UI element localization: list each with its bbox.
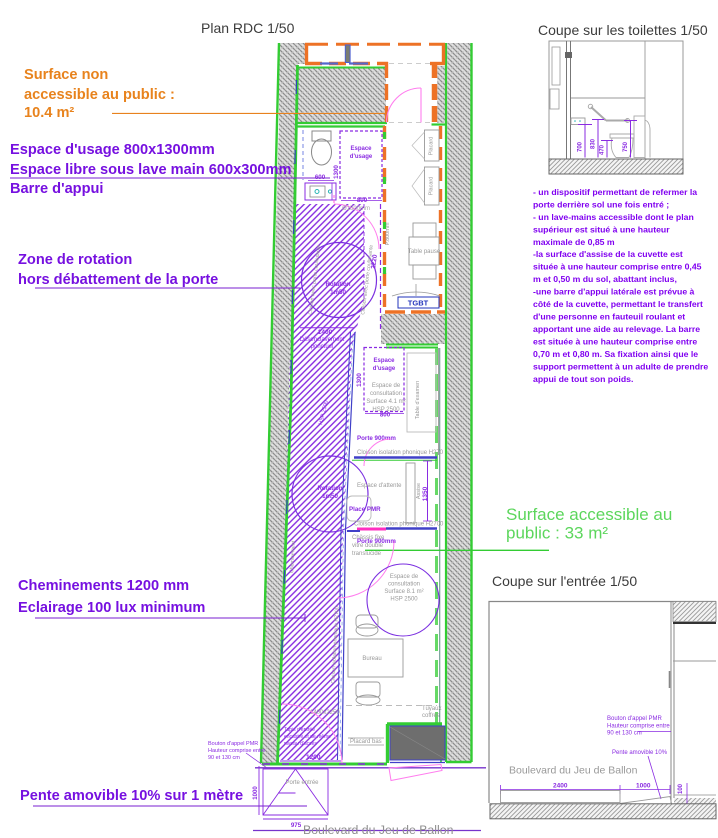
svg-text:90 et 130 cm: 90 et 130 cm bbox=[607, 731, 642, 737]
svg-text:- un dispositif permettant de: - un dispositif permettant de refermer l… bbox=[533, 187, 697, 197]
svg-text:Tapis d'entrée: Tapis d'entrée bbox=[284, 727, 315, 733]
svg-text:1200: 1200 bbox=[306, 754, 321, 761]
svg-text:1300: 1300 bbox=[333, 165, 340, 179]
svg-text:Porte 900mm: Porte 900mm bbox=[357, 538, 396, 545]
svg-text:Espace d'usage 800x1300mm: Espace d'usage 800x1300mm bbox=[10, 142, 215, 158]
svg-text:accessible au public :: accessible au public : bbox=[24, 87, 175, 103]
svg-text:Porte entrée: Porte entrée bbox=[285, 780, 319, 786]
svg-text:TGBT: TGBT bbox=[408, 299, 429, 308]
svg-text:hors débattement de la porte: hors débattement de la porte bbox=[18, 272, 218, 288]
svg-text:appui de tout son poids.: appui de tout son poids. bbox=[533, 374, 633, 384]
svg-text:Hauteur comprise entre: Hauteur comprise entre bbox=[607, 724, 670, 730]
svg-text:côté de la cuvette, permettant: côté de la cuvette, permettant le transf… bbox=[533, 299, 703, 309]
svg-text:1m50: 1m50 bbox=[330, 289, 346, 296]
svg-text:d'usage: d'usage bbox=[350, 154, 373, 160]
svg-text:Place PMR: Place PMR bbox=[349, 506, 381, 513]
svg-text:Surface accessible au: Surface accessible au bbox=[506, 505, 672, 524]
svg-text:800: 800 bbox=[380, 412, 391, 419]
svg-text:Espace de: Espace de bbox=[372, 383, 401, 389]
svg-text:située à une hauteur comprise: située à une hauteur comprise entre 0,45 bbox=[533, 262, 702, 272]
svg-text:10.4 m²: 10.4 m² bbox=[24, 105, 74, 121]
svg-text:Bureau: Bureau bbox=[362, 656, 381, 662]
svg-text:1m50: 1m50 bbox=[322, 493, 338, 500]
svg-text:Plan RDC 1/50: Plan RDC 1/50 bbox=[201, 20, 295, 36]
svg-text:Espace de: Espace de bbox=[390, 574, 419, 580]
svg-text:Bouton d'appel PMR: Bouton d'appel PMR bbox=[208, 741, 258, 747]
svg-text:Coupe sur l'entrée 1/50: Coupe sur l'entrée 1/50 bbox=[492, 573, 637, 589]
svg-text:public : 33 m²: public : 33 m² bbox=[506, 524, 608, 543]
svg-text:Surface 8.1 m²: Surface 8.1 m² bbox=[384, 589, 423, 595]
svg-text:100: 100 bbox=[678, 783, 684, 794]
svg-text:d'une personne en fauteuil rou: d'une personne en fauteuil roulant et bbox=[533, 312, 685, 322]
svg-text:consultation: consultation bbox=[370, 391, 402, 397]
svg-text:Coupe sur les toilettes 1/50: Coupe sur les toilettes 1/50 bbox=[538, 22, 708, 38]
svg-text:700: 700 bbox=[578, 141, 584, 152]
svg-text:90 et 130 cm: 90 et 130 cm bbox=[208, 755, 240, 761]
svg-text:Barre d'appui: Barre d'appui bbox=[10, 181, 103, 197]
svg-text:Eclairage 100 lux minimum: Eclairage 100 lux minimum bbox=[18, 600, 205, 616]
svg-text:m et 0,50 m du sol, abattant i: m et 0,50 m du sol, abattant inclus, bbox=[533, 274, 677, 284]
svg-text:Cloison isolation phonique H27: Cloison isolation phonique H2700 bbox=[354, 522, 444, 528]
svg-text:Bouton d'appel PMR: Bouton d'appel PMR bbox=[607, 716, 663, 722]
svg-text:Tuyaux: Tuyaux bbox=[422, 706, 441, 712]
svg-text:Rotation: Rotation bbox=[317, 485, 342, 492]
svg-text:Table pause: Table pause bbox=[408, 249, 441, 255]
svg-text:-la surface d'assise de la cuv: -la surface d'assise de la cuvette est bbox=[533, 249, 683, 259]
svg-text:P.800mm: P.800mm bbox=[385, 222, 391, 245]
svg-text:translucide: translucide bbox=[352, 551, 382, 557]
svg-text:consultation: consultation bbox=[388, 582, 420, 588]
svg-text:1000: 1000 bbox=[253, 786, 259, 800]
svg-text:Ø1500mm: Ø1500mm bbox=[342, 206, 370, 212]
svg-text:1400: 1400 bbox=[318, 329, 333, 336]
svg-text:Table d'examen: Table d'examen bbox=[415, 381, 421, 419]
svg-text:975: 975 bbox=[291, 822, 302, 829]
svg-text:apportant une aide au relevage: apportant une aide au relevage. La barre bbox=[533, 324, 700, 334]
svg-text:750: 750 bbox=[623, 141, 629, 152]
svg-text:Boulevard du Jeu de Ballon: Boulevard du Jeu de Ballon bbox=[509, 765, 638, 777]
svg-text:2220: 2220 bbox=[370, 254, 379, 270]
svg-text:support permettent à un adulte: support permettent à un adulte de prendr… bbox=[533, 361, 708, 371]
svg-text:d'usage: d'usage bbox=[373, 366, 396, 372]
svg-text:Désenclavement: Désenclavement bbox=[300, 337, 345, 343]
svg-text:1000: 1000 bbox=[636, 783, 651, 790]
svg-text:coffrés: coffrés bbox=[422, 713, 440, 719]
svg-text:830: 830 bbox=[591, 138, 597, 149]
svg-text:Hauteur comprise entre: Hauteur comprise entre bbox=[208, 748, 265, 754]
svg-text:Espace libre sous lave main 60: Espace libre sous lave main 600x300mm bbox=[10, 162, 292, 178]
svg-text:encastré et de même: encastré et de même bbox=[284, 734, 331, 740]
svg-text:HSP 2500: HSP 2500 bbox=[390, 597, 418, 603]
svg-text:Cheminements 1200 mm: Cheminements 1200 mm bbox=[18, 578, 189, 594]
svg-text:Espace d'attente: Espace d'attente bbox=[357, 483, 402, 489]
svg-text:2400: 2400 bbox=[553, 783, 568, 790]
svg-text:Boulevard du Jeu de Ballon: Boulevard du Jeu de Ballon bbox=[303, 823, 454, 837]
svg-text:-une barre d'appui latérale es: -une barre d'appui latérale est prévue à bbox=[533, 287, 695, 297]
svg-text:supérieur est situé à une haut: supérieur est situé à une hauteur bbox=[533, 224, 670, 234]
svg-text:Placard: Placard bbox=[429, 137, 435, 156]
svg-text:Porte 900mm: Porte 900mm bbox=[357, 435, 396, 442]
svg-text:porte derrière sol une fois en: porte derrière sol une fois entré ; bbox=[533, 199, 669, 209]
svg-text:Rotation: Rotation bbox=[325, 281, 350, 288]
svg-text:0,70 m et 0,80 m. Sa fixation: 0,70 m et 0,80 m. Sa fixation ainsi que … bbox=[533, 349, 698, 359]
svg-text:Espace: Espace bbox=[373, 358, 395, 364]
svg-text:- un lave-mains accessible don: - un lave-mains accessible dont le plan bbox=[533, 212, 694, 222]
svg-text:Espace: Espace bbox=[350, 146, 372, 152]
svg-text:470: 470 bbox=[600, 144, 606, 155]
svg-text:ponctuel: ponctuel bbox=[311, 344, 334, 350]
svg-text:Placard bas: Placard bas bbox=[350, 739, 382, 745]
svg-text:maximale de 0,85 m: maximale de 0,85 m bbox=[533, 237, 615, 247]
svg-text:niveau d'accès: niveau d'accès bbox=[284, 741, 317, 747]
svg-text:Surface non: Surface non bbox=[24, 67, 108, 83]
svg-text:Pente amovible 10% sur 1 mètre: Pente amovible 10% sur 1 mètre bbox=[20, 788, 243, 804]
svg-text:Zone de rotation: Zone de rotation bbox=[18, 252, 132, 268]
svg-text:1300: 1300 bbox=[356, 373, 363, 387]
svg-text:Placard: Placard bbox=[429, 177, 435, 196]
svg-text:est située à une hauteur compr: est située à une hauteur comprise entre bbox=[533, 336, 697, 346]
svg-text:Cloison isolation phonique H27: Cloison isolation phonique H270 bbox=[357, 450, 444, 456]
svg-text:Surface 4.1 m²: Surface 4.1 m² bbox=[366, 399, 405, 405]
svg-text:Pente amovible 10%: Pente amovible 10% bbox=[612, 750, 668, 756]
